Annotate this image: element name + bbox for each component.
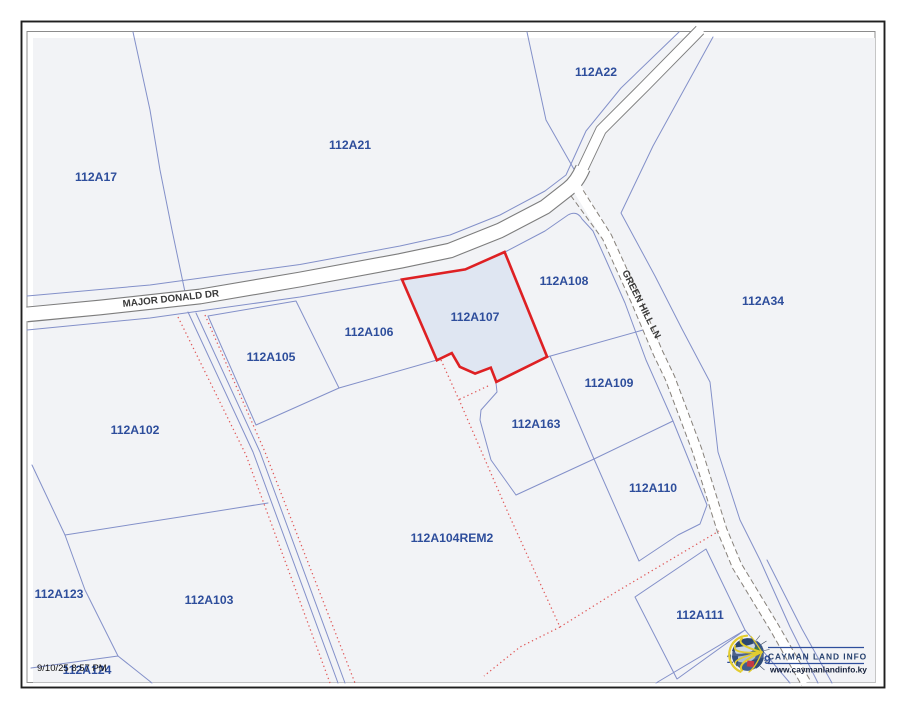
svg-text:112A107: 112A107 (451, 310, 500, 324)
svg-text:112A21: 112A21 (329, 138, 371, 152)
svg-text:112A123: 112A123 (35, 587, 84, 601)
svg-text:112A106: 112A106 (345, 325, 394, 339)
svg-text:112A22: 112A22 (575, 65, 617, 79)
svg-text:112A34: 112A34 (742, 294, 784, 308)
svg-text:112A111: 112A111 (676, 608, 724, 622)
svg-text:112A105: 112A105 (247, 350, 296, 364)
svg-text:112A108: 112A108 (540, 274, 589, 288)
svg-text:CAYMAN LAND INFO: CAYMAN LAND INFO (768, 652, 867, 662)
svg-text:112A109: 112A109 (585, 376, 634, 390)
svg-text:112A163: 112A163 (512, 417, 561, 431)
svg-text:www.caymanlandinfo.ky: www.caymanlandinfo.ky (769, 665, 867, 675)
svg-text:9/10/25 8:57 PM: 9/10/25 8:57 PM (37, 663, 107, 674)
svg-text:112A102: 112A102 (111, 423, 160, 437)
svg-text:112A104REM2: 112A104REM2 (411, 531, 494, 545)
svg-text:112A110: 112A110 (629, 481, 677, 495)
svg-text:112A17: 112A17 (75, 170, 117, 184)
svg-text:112A103: 112A103 (185, 593, 234, 607)
